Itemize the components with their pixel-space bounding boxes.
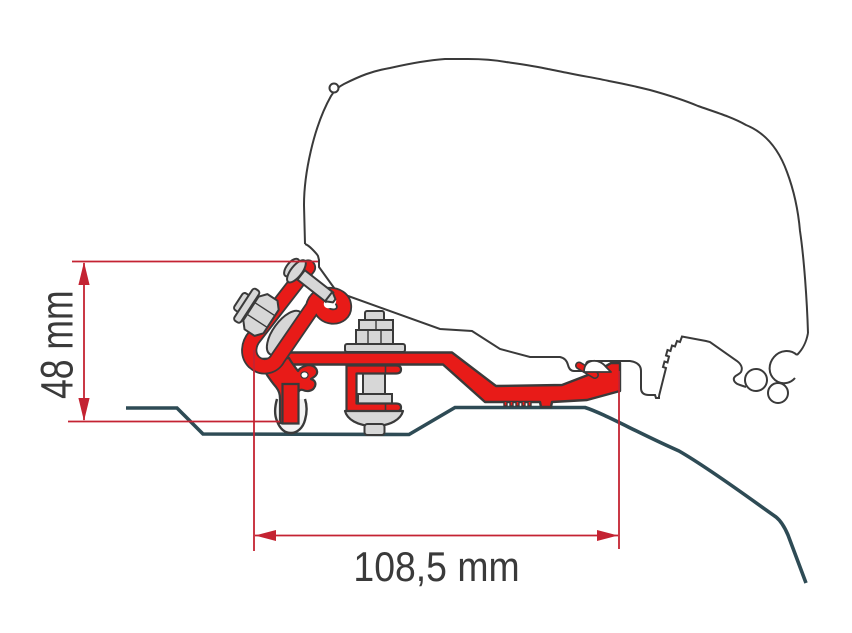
svg-text:108,5 mm: 108,5 mm [353, 544, 519, 590]
svg-text:48 mm: 48 mm [31, 290, 82, 399]
